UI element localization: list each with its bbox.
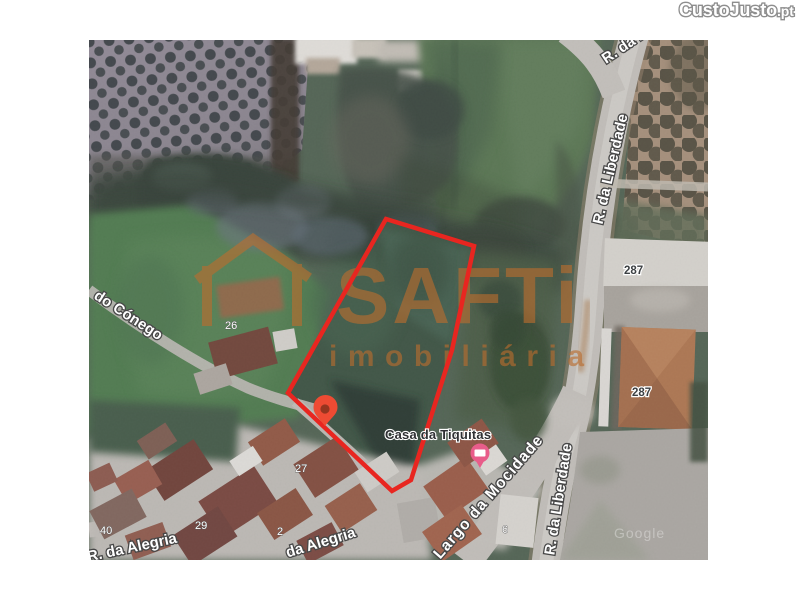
svg-text:26: 26 (225, 320, 237, 332)
svg-text:40: 40 (100, 525, 112, 537)
svg-text:Google: Google (614, 525, 665, 541)
svg-text:Casa da Tiquitas: Casa da Tiquitas (385, 427, 491, 442)
svg-text:29: 29 (195, 520, 207, 532)
svg-text:287: 287 (624, 265, 643, 277)
svg-text:287: 287 (632, 387, 651, 399)
svg-text:27: 27 (295, 463, 307, 475)
svg-text:imobiliária: imobiliária (329, 340, 595, 373)
svg-text:6: 6 (502, 524, 508, 536)
svg-text:2: 2 (277, 526, 283, 538)
svg-text:CustoJusto.pt: CustoJusto.pt (679, 0, 794, 20)
